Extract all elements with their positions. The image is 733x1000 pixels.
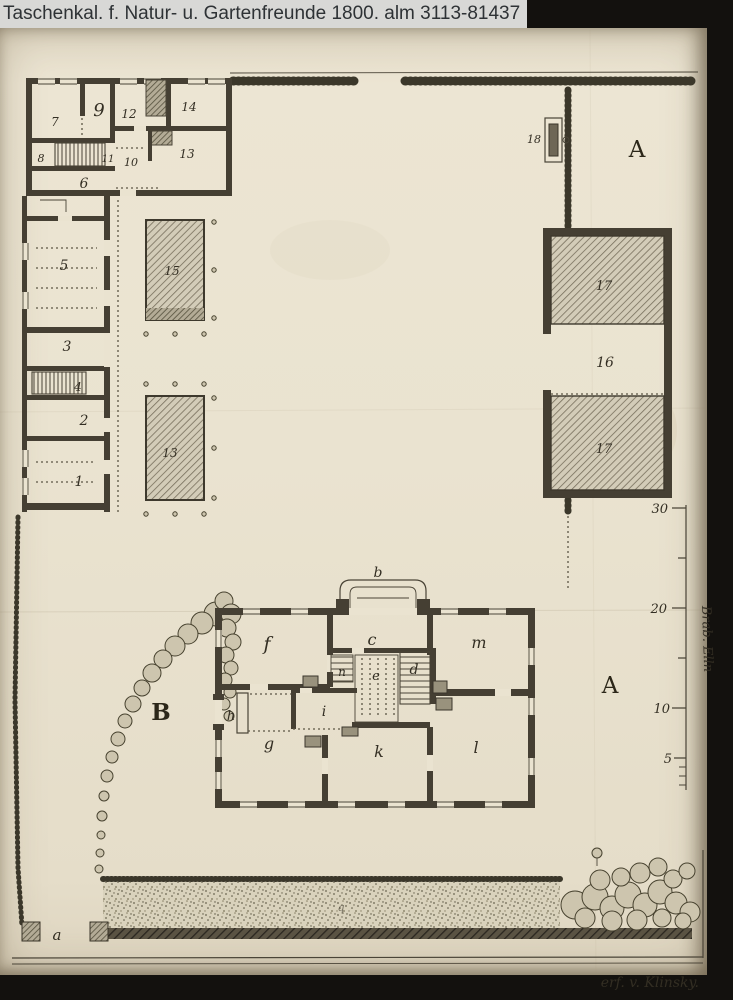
tree-cluster-southeast (561, 848, 700, 931)
room-label-7: 7 (51, 115, 59, 129)
engraver-signature: erf. v. Klinsky. (601, 975, 699, 991)
hatched-shed-13 (144, 382, 216, 516)
gate-label-a: a (53, 926, 62, 944)
room-label-4: 4 (73, 380, 82, 394)
room-label-h: h (227, 709, 235, 724)
ditch-label-q: q (337, 901, 344, 914)
area-label-A-south: A (601, 673, 619, 699)
room-label-10: 10 (124, 156, 138, 169)
hatched-shed-15 (144, 220, 216, 336)
page-title: Taschenkal. f. Natur- u. Gartenfreunde 1… (3, 3, 520, 24)
shed-label-17-bottom: 17 (596, 442, 613, 457)
room-label-12: 12 (121, 107, 136, 121)
room-label-m: m (471, 633, 486, 652)
area-label-A-north: A (628, 137, 646, 163)
scale-tick-20: 20 (649, 602, 667, 617)
garden-plan-engraving: 30 20 10 5 Brab. Elln 7 9 12 14 8 11 10 … (0, 0, 733, 1000)
portico-label-b: b (374, 565, 383, 581)
scale-tick-30: 30 (651, 502, 668, 517)
room-label-f: f (261, 633, 273, 655)
room-label-e: e (372, 669, 380, 684)
shed-label-13: 13 (162, 446, 178, 460)
northwest-building-complex (26, 78, 232, 196)
room-label-g: g (264, 734, 274, 753)
villa-floorplan (213, 580, 535, 808)
shed-label-15: 15 (164, 264, 179, 278)
well-label-18: 18 (527, 133, 541, 146)
room-label-i: i (322, 704, 326, 720)
area-label-B: B (151, 699, 170, 726)
room-label-1: 1 (75, 474, 84, 490)
room-label-8: 8 (38, 152, 45, 165)
scale-bar: 30 20 10 5 Brab. Elln (649, 502, 715, 790)
stair-label-d: d (410, 662, 419, 678)
room-label-14: 14 (181, 100, 196, 114)
title-bar: Taschenkal. f. Natur- u. Gartenfreunde 1… (0, 0, 527, 28)
room-label-k: k (374, 742, 384, 761)
room-label-l: l (473, 738, 478, 757)
room-label-c: c (368, 630, 377, 649)
scale-tick-10: 10 (653, 702, 670, 717)
room-label-6: 6 (80, 176, 89, 192)
scale-tick-5: 5 (664, 752, 672, 767)
scale-caption: Brab. Elln (698, 605, 715, 673)
yard-label-16: 16 (596, 355, 614, 371)
room-label-13: 13 (179, 147, 195, 161)
scan-viewport: 30 20 10 5 Brab. Elln 7 9 12 14 8 11 10 … (0, 0, 733, 1000)
room-label-5: 5 (60, 258, 69, 274)
shed-label-17-top: 17 (596, 279, 613, 294)
room-label-11: 11 (102, 154, 115, 165)
room-label-9: 9 (93, 100, 104, 121)
room-label-n: n (338, 665, 346, 679)
room-label-2: 2 (79, 413, 89, 429)
room-label-3: 3 (63, 339, 72, 355)
